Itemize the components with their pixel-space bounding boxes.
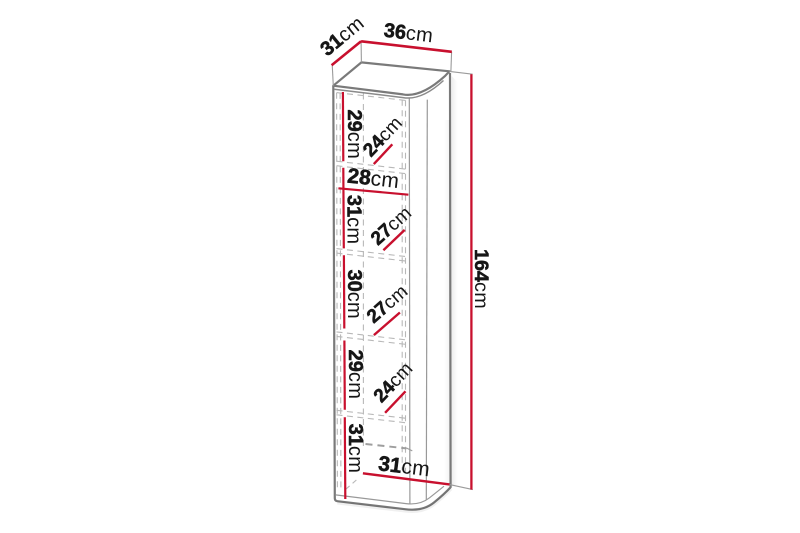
svg-text:29cm: 29cm <box>343 110 365 160</box>
svg-text:164cm: 164cm <box>470 249 492 309</box>
svg-text:36cm: 36cm <box>383 20 435 48</box>
svg-text:31cm: 31cm <box>343 195 365 245</box>
svg-text:30cm: 30cm <box>343 269 365 319</box>
svg-text:31cm: 31cm <box>344 424 366 474</box>
svg-text:29cm: 29cm <box>344 350 366 400</box>
